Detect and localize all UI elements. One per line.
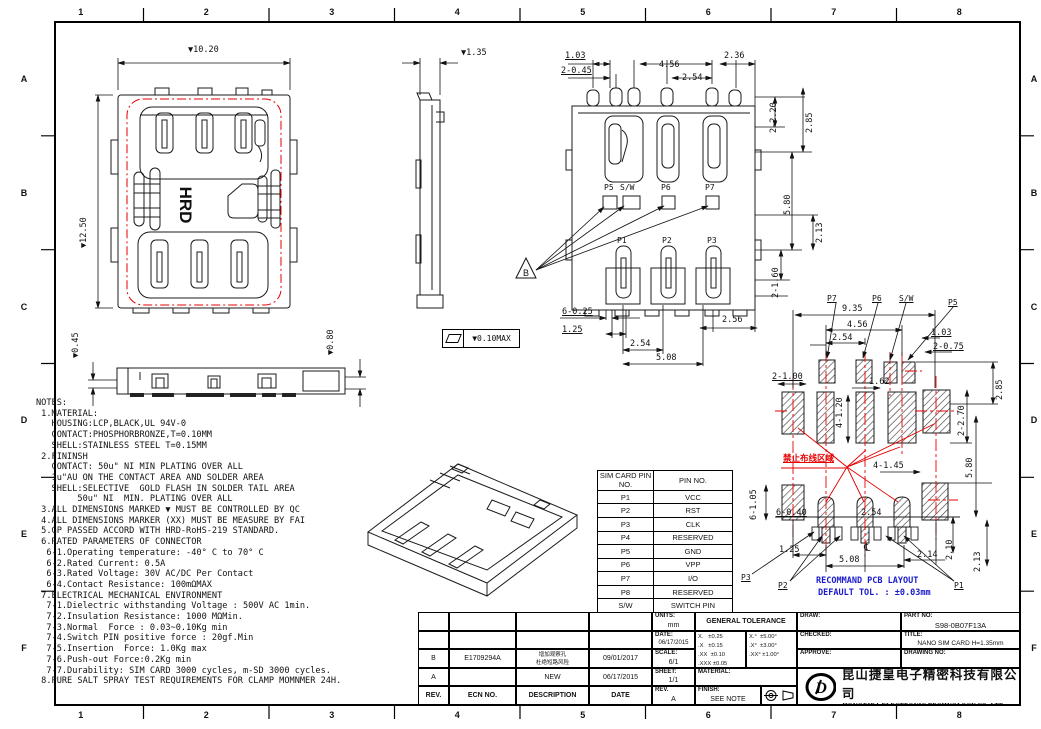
pcb-dim-4120: 4-1.20	[836, 397, 845, 428]
table-row: P2RST	[598, 504, 733, 518]
pcb-dim-6105: 6-1.05	[750, 489, 759, 520]
scale-cell: SCALE:6/1	[652, 649, 695, 668]
dim-front-right: ▼0.80	[327, 329, 336, 355]
hrd-marking: HRD	[176, 187, 195, 224]
projection-circle-icon	[764, 689, 779, 702]
list-item: 6-4.Contact Resistance: 100mΩMAX	[36, 580, 341, 591]
isometric-view	[368, 464, 577, 596]
list-item: 3.ALL DIMENSIONS MARKED ▼ MUST BE CONTRO…	[36, 505, 341, 516]
bottom-view	[566, 88, 761, 316]
pcb-pin-p2: P2	[778, 581, 788, 590]
list-item: CONTACT:PHOSPHORBRONZE,T=0.10MM	[36, 430, 341, 441]
pcb-note-line1: RECOMMAND PCB LAYOUT	[816, 577, 918, 586]
dim-bv-10: 2-1.60	[772, 267, 781, 298]
dim-bv-7: 2.85	[806, 113, 815, 133]
pin-label-p7: P7	[705, 183, 715, 192]
pcb-dim-214: 2.14	[917, 551, 937, 560]
pcb-dim-2100: 2-1.00	[772, 373, 803, 382]
projection-cone-icon	[781, 689, 795, 702]
list-item: HOUSING:LCP,BLACK,UL 94V-0	[36, 419, 341, 430]
flatness-icon	[443, 330, 464, 347]
pcb-keepout-text: 禁止布线区域	[783, 454, 834, 463]
pcb-dim-254b: 2.54	[861, 509, 881, 518]
rev-cell-empty	[418, 612, 449, 631]
pin-table-header-2: PIN NO.	[654, 471, 733, 491]
list-item: SHELL:SELECTIVE GOLD FLASH IN SOLDER TAI…	[36, 484, 341, 495]
pcb-dim-6040: 6-0.40	[776, 509, 807, 518]
dim-bv-14: 5.08	[656, 354, 676, 363]
pcb-pin-p1: P1	[954, 581, 964, 590]
table-row: P6VPP	[598, 558, 733, 572]
list-item: 2.FININSH	[36, 452, 341, 463]
engineering-drawing-sheet: 12345678 12345678 ABCDEF ABCDEF	[0, 0, 1041, 729]
company-logo: D	[804, 673, 836, 701]
approve-cell: APPROVE:	[797, 649, 901, 668]
tolerance-header-cell: GENERAL TOLERANCE	[695, 612, 797, 631]
rev-b-desc: 增加观察孔杜绝短路风险	[516, 649, 589, 668]
list-item: 1.MATERIAL:	[36, 409, 341, 420]
rev-letter-cell: REV.A	[652, 686, 695, 705]
list-item: SHELL:STAINLESS STEEL T=0.15MM	[36, 441, 341, 452]
pcb-dim-162: 1.62	[869, 378, 889, 387]
rev-header: REV.	[418, 686, 449, 705]
sheet-cell: SHEET:1/1	[652, 668, 695, 686]
list-item: 7-5.Insertion Force: 1.0Kg max	[36, 644, 341, 655]
pin-label-p6: P6	[661, 183, 671, 192]
side-profile-view	[416, 93, 444, 308]
company-cell: D 昆山捷皇电子精密科技有限公司 HONGRIDA ELECTRONIC TEC…	[797, 668, 1020, 705]
company-name-cn: 昆山捷皇电子精密科技有限公司	[842, 668, 1019, 702]
list-item: 7-1.Dielectric withstanding Voltage : 50…	[36, 601, 341, 612]
pcb-dim-580: 5.80	[966, 458, 975, 478]
pcb-pin-p5: P5	[948, 298, 958, 307]
material-cell: MATERIAL:	[695, 668, 797, 686]
notes-block: NOTES: 1.MATERIAL: HOUSING:LCP,BLACK,UL …	[36, 398, 341, 687]
dim-bv-13: 2.54	[630, 340, 650, 349]
list-item: 8.PURE SALT SPRAY TEST REQUIREMENTS FOR …	[36, 676, 341, 687]
pcb-pin-sw: S/W	[899, 294, 913, 303]
list-item: 7-2.Insulation Resistance: 1000 MΩMin.	[36, 612, 341, 623]
pcb-dim-285: 2.85	[996, 380, 1005, 400]
list-item: 1u"AU ON THE CONTACT AREA AND SOLDER ARE…	[36, 473, 341, 484]
list-item: 7-4.Switch PIN positive force : 20gf.Min	[36, 633, 341, 644]
list-item: 7-3.Normal Force : 0.03~0.10Kg min	[36, 623, 341, 634]
front-view	[117, 368, 345, 397]
pcb-dim-2075: 2-0.75	[933, 343, 964, 352]
pcb-dim-456: 4.56	[847, 321, 867, 330]
list-item: 5.GP PASSED ACCORD WITH HRD-RoHS-219 STA…	[36, 526, 341, 537]
pcb-dim-254a: 2.54	[832, 334, 852, 343]
table-row: P4RESERVED	[598, 531, 733, 545]
dim-bv-1: 1.03	[565, 52, 585, 61]
dim-bv-8: 5.80	[784, 195, 793, 215]
pcb-dim-125: 1.25	[779, 546, 799, 555]
dim-bv-11: 6-0.25	[562, 308, 593, 317]
pcb-pin-p7: P7	[827, 294, 837, 303]
date-cell: DATE:06/17/2015	[652, 631, 695, 649]
pcb-dim-213: 2.13	[974, 552, 983, 572]
dim-front-left: ▼0.45	[72, 332, 81, 358]
table-row: P1VCC	[598, 490, 733, 504]
part-number: S98-0B07F13A	[902, 621, 1019, 630]
pin-label-p3: P3	[707, 236, 717, 245]
pcb-dim-210: 2.10	[946, 540, 955, 560]
pcb-dim-935: 9.35	[842, 305, 862, 314]
top-view: HRD	[111, 88, 297, 313]
part-no-cell: PART NO: S98-0B07F13A	[901, 612, 1020, 631]
pcb-dim-2270: 2-2.70	[958, 405, 967, 436]
rev-a-desc: NEW	[516, 668, 589, 686]
dim-top-view-width: ▼10.20	[188, 46, 219, 55]
dim-bv-15: 2.56	[722, 316, 742, 325]
datum-b-flag: B	[516, 206, 708, 278]
pcb-dim-103: 1.03	[931, 329, 951, 338]
dim-bv-9: 2.13	[816, 223, 825, 243]
pcb-pin-p3: P3	[741, 573, 751, 582]
dim-bv-4: 2.54	[682, 74, 702, 83]
table-row: P8RESERVED	[598, 585, 733, 599]
dim-bv-12: 1.25	[562, 326, 582, 335]
list-item: 6-1.Operating temperature: -40° C to 70°…	[36, 548, 341, 559]
list-item: 50u" NI MIN. PLATING OVER ALL	[36, 494, 341, 505]
drawing-title: NANO SIM CARD H=1.35mm	[902, 640, 1019, 647]
pin-label-p5: P5	[604, 183, 614, 192]
finish-cell: FINISH:SEE NOTE	[695, 686, 761, 705]
dim-bv-6: 2-2.20	[770, 102, 779, 133]
company-name-en: HONGRIDA ELECTRONIC TECHNOLOGY CO.,LTD.	[842, 702, 1019, 706]
tolerance-linear-cell: X. ±0.25 .X ±0.15 .XX ±0.10 .XXX ±0.05	[695, 631, 746, 668]
table-row: P7I/O	[598, 572, 733, 586]
pin-label-sw: S/W	[620, 183, 634, 192]
pcb-note-line2: DEFAULT TOL. : ±0.03mm	[818, 589, 931, 598]
pcb-dim-508: 5.08	[839, 556, 859, 565]
dim-side-height: ▼1.35	[461, 49, 487, 58]
dim-bv-2: 2-0.45	[561, 67, 592, 76]
list-item: 7-7.Durability: SIM CARD 3000 cycles, m-…	[36, 666, 341, 677]
list-item: 6-3.Rated Voltage: 30V AC/DC Per Contact	[36, 569, 341, 580]
pcb-centerline-symbol: ℄	[864, 544, 870, 553]
dim-bv-3: 4.56	[659, 61, 679, 70]
projection-symbol-cell	[761, 686, 797, 705]
sim-pin-table: SIM CARD PIN NO. PIN NO. P1VCC P2RST P3C…	[597, 470, 733, 613]
rev-b: B	[418, 649, 449, 668]
list-item: 7-6.Push-out Force:0.2Kg min	[36, 655, 341, 666]
pcb-dim-4145: 4-1.45	[873, 462, 904, 471]
list-item: NOTES:	[36, 398, 341, 409]
dim-top-view-height: ▼12.50	[80, 217, 89, 248]
list-item: 7.ELECTRICAL MECHANICAL ENVIRONMENT	[36, 591, 341, 602]
units-cell: UNITS:mm	[652, 612, 695, 631]
pin-label-p2: P2	[662, 236, 672, 245]
rev-b-date: 09/01/2017	[589, 649, 652, 668]
list-item: 6-2.Rated Current: 0.5A	[36, 559, 341, 570]
tolerance-angular-cell: X.° ±5.00° .X° ±3.00° .XX° ±1.00°	[746, 631, 797, 668]
pin-table-header-1: SIM CARD PIN NO.	[598, 471, 654, 491]
checked-cell: CHECKED:	[797, 631, 901, 649]
list-item: 4.ALL DIMENSIONS MARKER (XX) MUST BE MEA…	[36, 516, 341, 527]
table-row: P5GND	[598, 545, 733, 559]
dim-bv-5: 2.36	[724, 52, 744, 61]
list-item: 6.RATED PARAMETERS OF CONNECTOR	[36, 537, 341, 548]
drawing-no-cell: DRAWING NO:	[901, 649, 1020, 668]
rev-b-ecn: E1709294A	[449, 649, 516, 668]
table-row: P3CLK	[598, 517, 733, 531]
flatness-value: ▼0.10MAX	[464, 330, 519, 347]
rev-a: A	[418, 668, 449, 686]
table-row: S/WSWITCH PIN	[598, 599, 733, 613]
list-item: CONTACT: 50u" NI MIN PLATING OVER ALL	[36, 462, 341, 473]
datum-b-label: B	[523, 268, 529, 278]
pcb-pin-p6: P6	[872, 294, 882, 303]
flatness-callout: ▼0.10MAX	[442, 329, 520, 348]
side-profile-dims	[402, 58, 458, 95]
pin-label-p1: P1	[617, 236, 627, 245]
rev-a-date: 06/17/2015	[589, 668, 652, 686]
draw-cell: DRAW:	[797, 612, 901, 631]
title-cell: TITLE: NANO SIM CARD H=1.35mm	[901, 631, 1020, 649]
